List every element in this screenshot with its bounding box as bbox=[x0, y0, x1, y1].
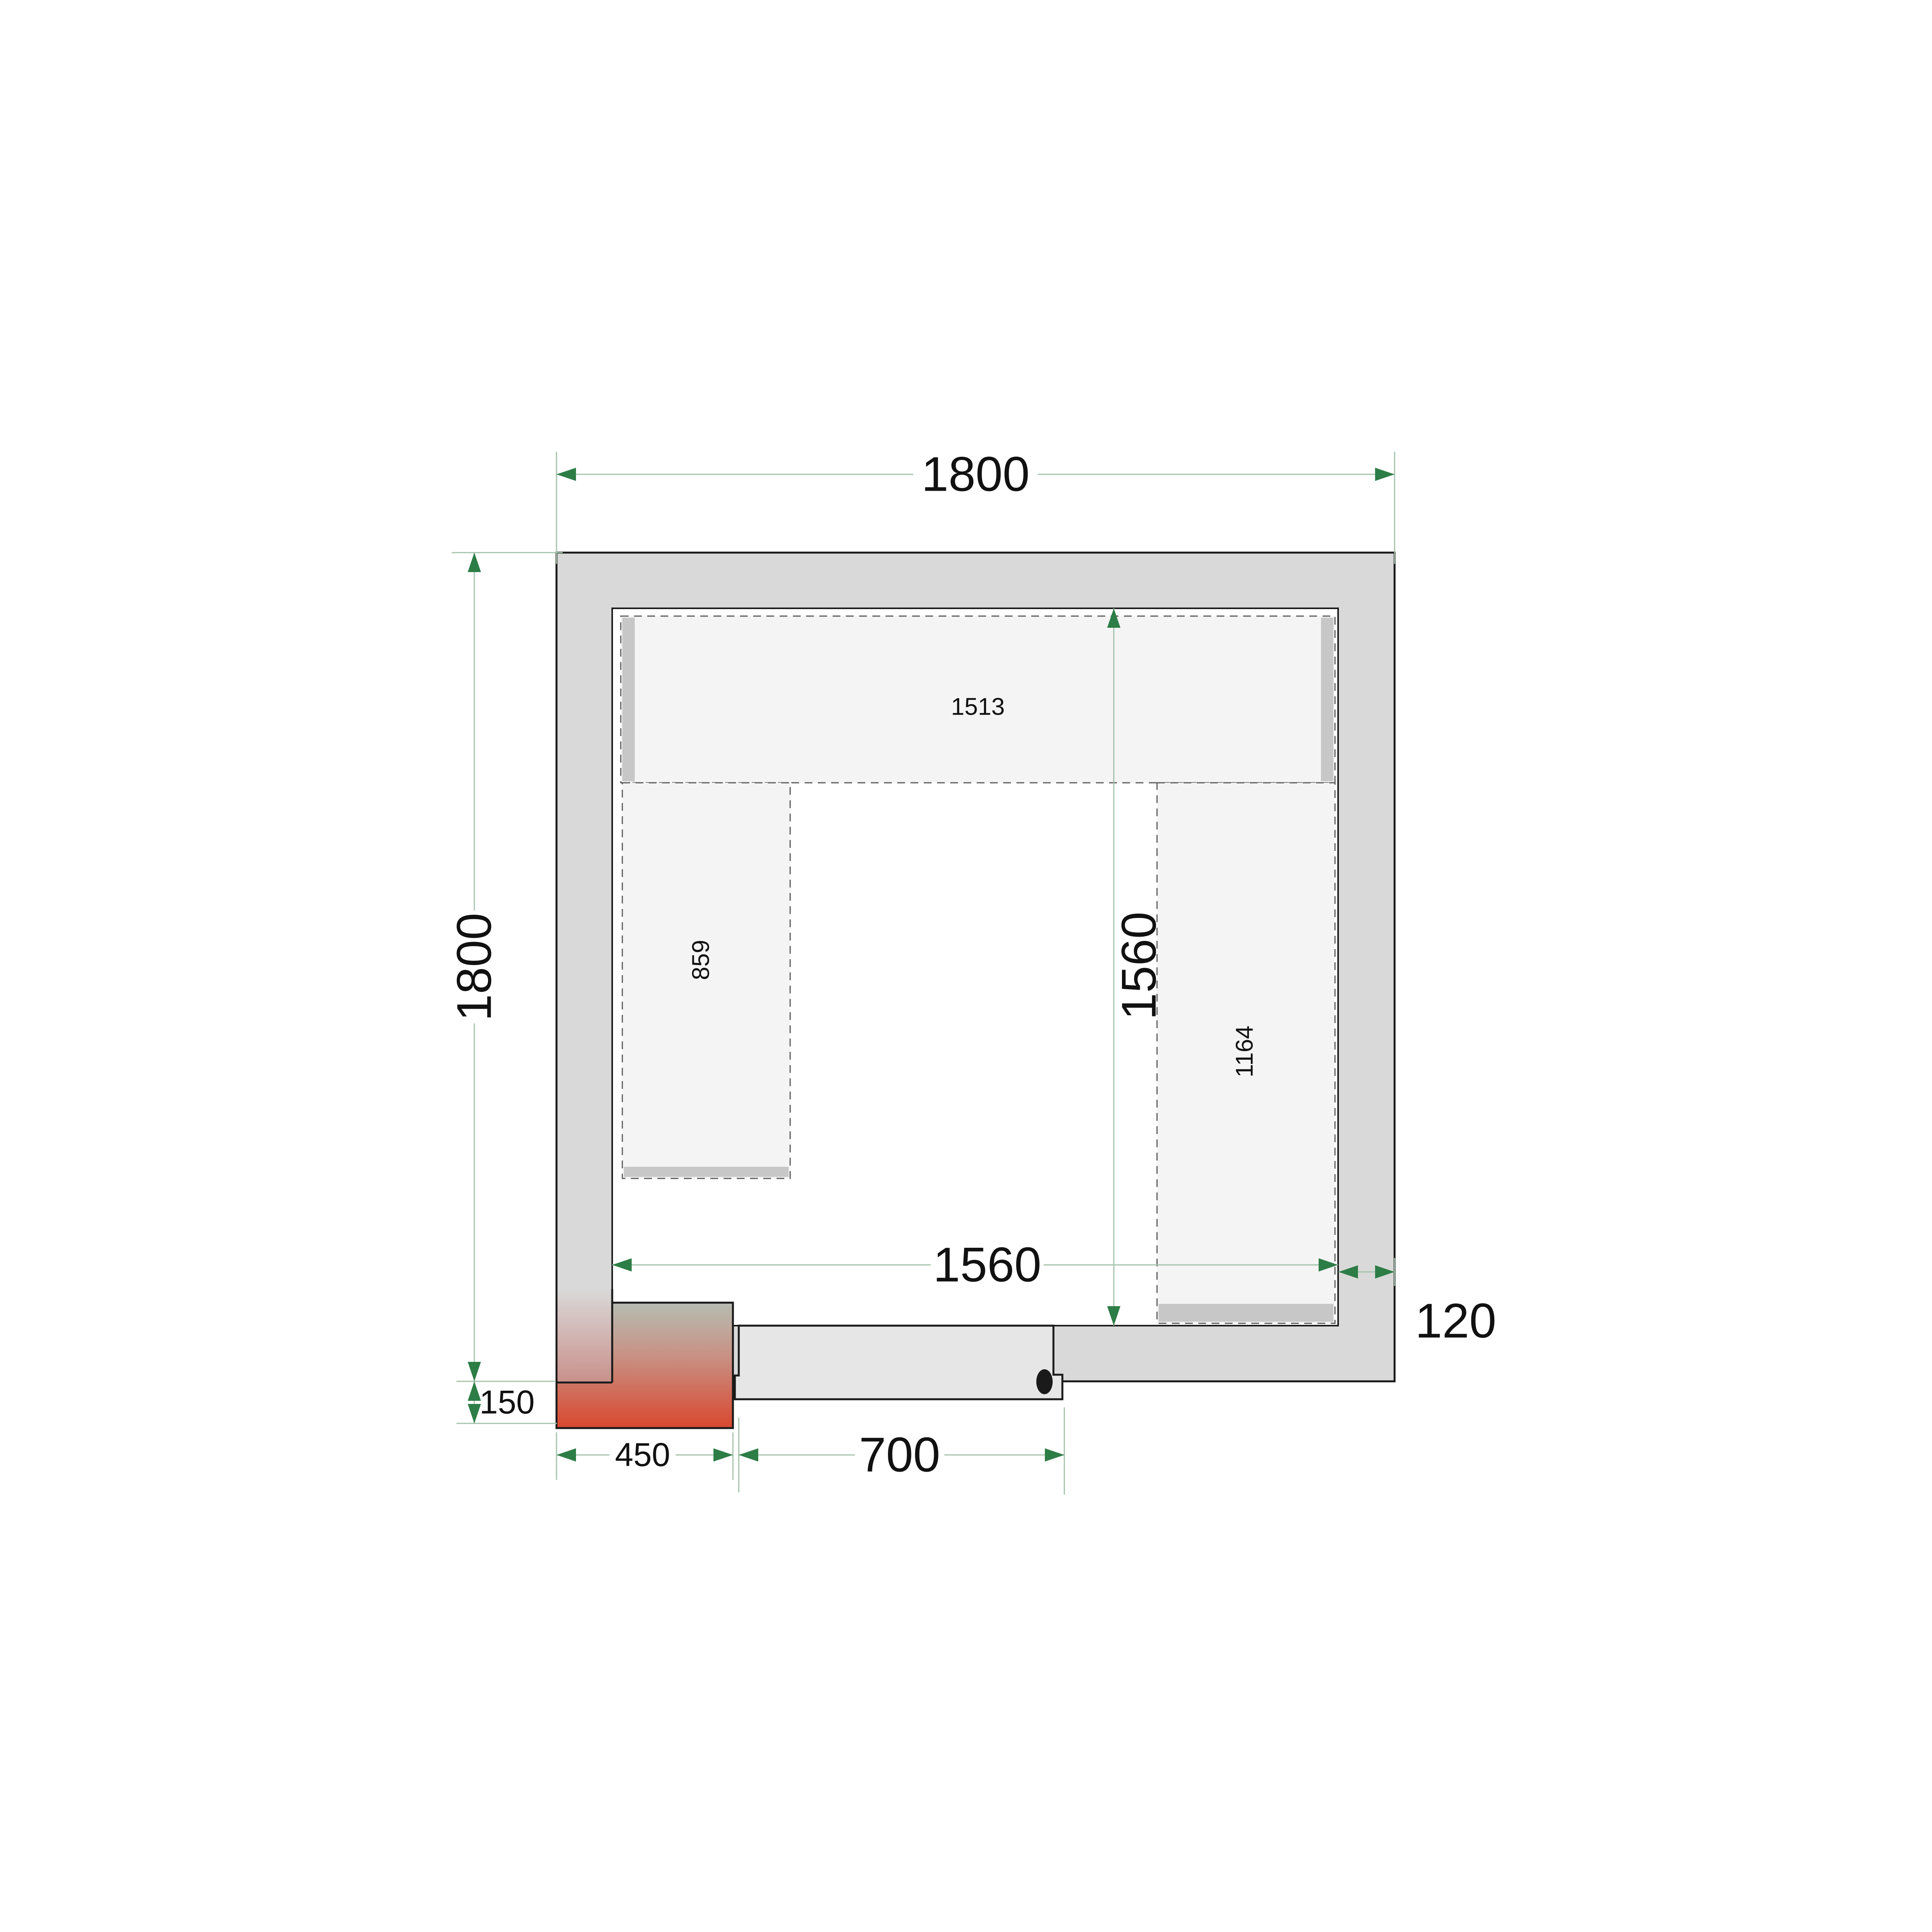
label-shelf-top: 1513 bbox=[951, 694, 1005, 720]
label-shelf-right: 1164 bbox=[1231, 1025, 1258, 1077]
dim-150-arrow-down bbox=[468, 1404, 481, 1423]
dim-450-arrow-left bbox=[557, 1448, 576, 1462]
floor-plan-canvas: 1800 1800 150 450 700 1560 1560 120 1513… bbox=[0, 0, 1932, 1932]
dim-top-arrow-left bbox=[557, 468, 576, 481]
dim-450-arrow-right bbox=[713, 1448, 733, 1462]
dim-left-arrow-top bbox=[468, 553, 481, 572]
door-handle-dot bbox=[1036, 1369, 1053, 1394]
dim-700-label: 700 bbox=[859, 1428, 940, 1482]
dim-top-label: 1800 bbox=[921, 447, 1030, 502]
dim-700-arrow-right bbox=[1045, 1448, 1064, 1462]
dim-vinner-label: 1560 bbox=[1112, 912, 1166, 1020]
shelf-top-strip-right bbox=[1321, 618, 1333, 781]
shelf-left-strip bbox=[624, 1167, 789, 1177]
cold-room-floor-plan: 1800 1800 150 450 700 1560 1560 120 1513… bbox=[0, 0, 1932, 1932]
cooling-unit-wall-overlay bbox=[557, 1289, 612, 1383]
dim-top-arrow-right bbox=[1375, 468, 1395, 481]
dim-150-label: 150 bbox=[479, 1384, 535, 1421]
dim-120-label: 120 bbox=[1415, 1294, 1497, 1348]
dim-left-label: 1800 bbox=[447, 913, 502, 1021]
dim-150-arrow-up bbox=[468, 1381, 481, 1401]
dim-left-arrow-bottom bbox=[468, 1362, 481, 1381]
dim-450-label: 450 bbox=[615, 1437, 670, 1474]
label-shelf-left: 859 bbox=[688, 940, 715, 980]
shelf-right-strip bbox=[1159, 1304, 1333, 1322]
door-leaf bbox=[735, 1326, 1062, 1399]
dim-hinner-label: 1560 bbox=[933, 1238, 1041, 1292]
shelf-left bbox=[622, 783, 790, 1178]
shelf-top-strip-left bbox=[622, 618, 635, 781]
dim-700-arrow-left bbox=[739, 1448, 758, 1462]
